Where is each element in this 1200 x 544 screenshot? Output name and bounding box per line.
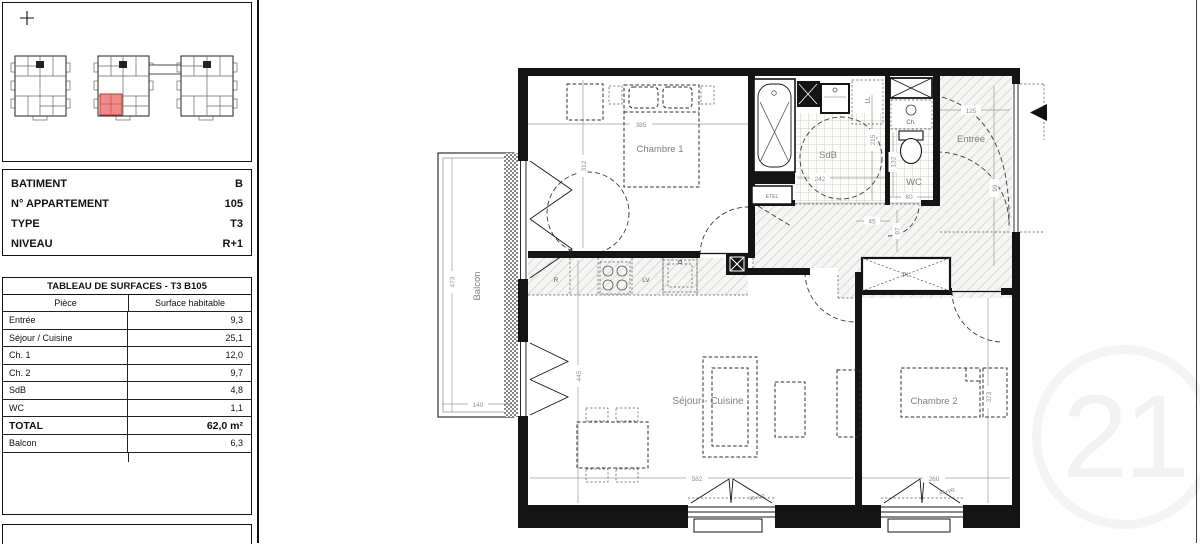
- dim-balcon-473: 473: [450, 276, 457, 287]
- window-label-sejour: 95+VR: [749, 494, 766, 503]
- closet-label: Pl.: [902, 273, 909, 279]
- room-label-sdb: SdB: [819, 150, 837, 161]
- bathroom-tile-floor: [795, 113, 885, 202]
- bed-chambre2: [901, 368, 980, 417]
- balcony-wall-band: [504, 153, 518, 417]
- dim-sejour-582: 582: [692, 476, 703, 483]
- key-plan-building-middle: [94, 56, 181, 120]
- room-label-entree: Entrée: [957, 134, 985, 145]
- key-plan-building-left: [11, 56, 70, 120]
- coffee-table: [775, 382, 805, 437]
- col-header-surface: Surface habitable: [129, 298, 251, 308]
- dishwasher-label: LV: [642, 277, 650, 284]
- floor-plan: 473 140 Balcon: [428, 50, 1050, 543]
- info-row-batiment: BATIMENT B: [3, 174, 251, 194]
- window-label-chambre2: 95+VR: [939, 488, 956, 497]
- info-label: NIVEAU: [11, 238, 53, 250]
- dim-entree-125: 125: [966, 108, 977, 115]
- surface-table-title: TABLEAU DE SURFACES - T3 B105: [3, 278, 251, 295]
- bottom-empty-box: [2, 524, 252, 544]
- room-label-sejour: Séjour - Cuisine: [672, 396, 744, 407]
- dim-entree-99: 99: [992, 184, 999, 192]
- key-plan-box: [2, 2, 252, 162]
- bathtub: [754, 79, 795, 172]
- info-value: T3: [230, 218, 243, 230]
- water-heater-label: Ch.: [906, 120, 916, 126]
- kitchen-counter-hatch: [528, 258, 748, 295]
- watermark: 21: [1032, 345, 1200, 529]
- table-row: Ch. 2 9,7: [3, 365, 251, 383]
- table-divider-stub: [3, 453, 129, 462]
- french-door-sejour: [530, 343, 568, 415]
- dim-hall-97: 97: [895, 227, 902, 235]
- dim-chambre2-260: 260: [929, 476, 940, 483]
- info-row-niveau: NIVEAU R+1: [3, 234, 251, 254]
- dim-chambre1-312: 312: [581, 160, 588, 171]
- key-plan-building-right: [177, 56, 237, 120]
- table-row: Entrée 9,3: [3, 312, 251, 330]
- table-row: Ch. 1 12,0: [3, 347, 251, 365]
- surface-table-header: Pièce Surface habitable: [3, 295, 251, 312]
- info-row-type: TYPE T3: [3, 214, 251, 234]
- balcony: 473 140 Balcon: [438, 153, 518, 417]
- dim-sdb-242: 242: [815, 176, 826, 183]
- info-row-appartement: N° APPARTEMENT 105: [3, 194, 251, 214]
- compass-plus-icon: [20, 11, 34, 25]
- sidebar-divider: [257, 0, 259, 543]
- room-label-wc: WC: [906, 177, 922, 188]
- entrance-arrow-icon: [1030, 104, 1047, 121]
- info-label: N° APPARTEMENT: [11, 198, 109, 210]
- dim-wc-80: 80: [905, 194, 913, 201]
- key-plan-drawing: [3, 3, 251, 161]
- dim-wc-132: 132: [891, 156, 898, 167]
- fridge-label: R: [554, 277, 559, 284]
- wardrobe-chambre1: [567, 84, 603, 120]
- bed-chambre1: [624, 85, 699, 187]
- col-header-piece: Pièce: [3, 295, 129, 311]
- table-row-balcon: Balcon 6,3: [3, 435, 251, 453]
- table-row-total: TOTAL 62,0 m²: [3, 417, 251, 435]
- room-label-chambre2: Chambre 2: [911, 396, 958, 407]
- dim-chambre1-385: 385: [636, 122, 647, 129]
- info-table: BATIMENT B N° APPARTEMENT 105 TYPE T3 NI…: [2, 169, 252, 256]
- room-label-chambre1: Chambre 1: [637, 144, 684, 155]
- dim-chambre2-373: 373: [986, 391, 993, 402]
- surface-table: TABLEAU DE SURFACES - T3 B105 Pièce Surf…: [2, 277, 252, 515]
- room-label-balcon: Balcon: [472, 271, 483, 300]
- dim-balcon-140: 140: [473, 402, 484, 409]
- info-value: B: [235, 178, 243, 190]
- info-value: 105: [225, 198, 243, 210]
- dim-hall-45: 45: [868, 219, 876, 226]
- table-row: Séjour / Cuisine 25,1: [3, 330, 251, 348]
- dining-table: [577, 422, 648, 468]
- dim-sdb-215: 215: [870, 134, 877, 145]
- table-row: WC 1,1: [3, 400, 251, 418]
- etel-label: ETEL: [766, 194, 779, 200]
- info-value: R+1: [223, 238, 244, 250]
- info-label: TYPE: [11, 218, 40, 230]
- table-row: SdB 4,8: [3, 382, 251, 400]
- sofa: [703, 357, 757, 457]
- dim-sejour-445: 445: [576, 370, 583, 381]
- washer-label: LL: [866, 96, 872, 103]
- toilet: [899, 131, 923, 164]
- floorplan-page: { "key_plan": { "compass": "+", "highlig…: [0, 0, 1200, 543]
- info-label: BATIMENT: [11, 178, 67, 190]
